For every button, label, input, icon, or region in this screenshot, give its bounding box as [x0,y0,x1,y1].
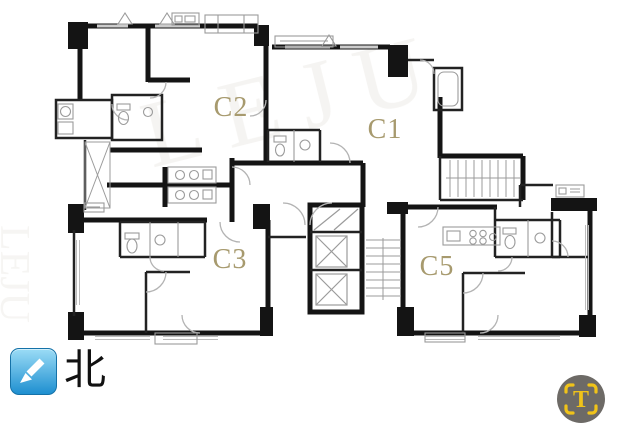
scan-frame-icon: T [556,374,606,424]
t-watermark-badge[interactable]: T [556,374,606,424]
southwest-arrow-icon [11,349,56,394]
windows [77,225,589,340]
unit-label-c2: C2 [214,92,249,123]
screenshot-stage: LEJU LEJU [0,0,640,441]
north-indicator: 北 [10,348,106,395]
unit-label-c5: C5 [420,251,455,282]
unit-label-c3: C3 [213,244,248,275]
watermark-text-vertical: LEJU [0,225,37,323]
duct-shaft-x-icon [85,142,110,208]
north-arrow-box [10,348,57,395]
elevator-shaft-x-icon [314,209,358,305]
unit-label-c1: C1 [368,114,403,145]
badge-letter: T [573,387,589,413]
north-label: 北 [64,348,106,392]
